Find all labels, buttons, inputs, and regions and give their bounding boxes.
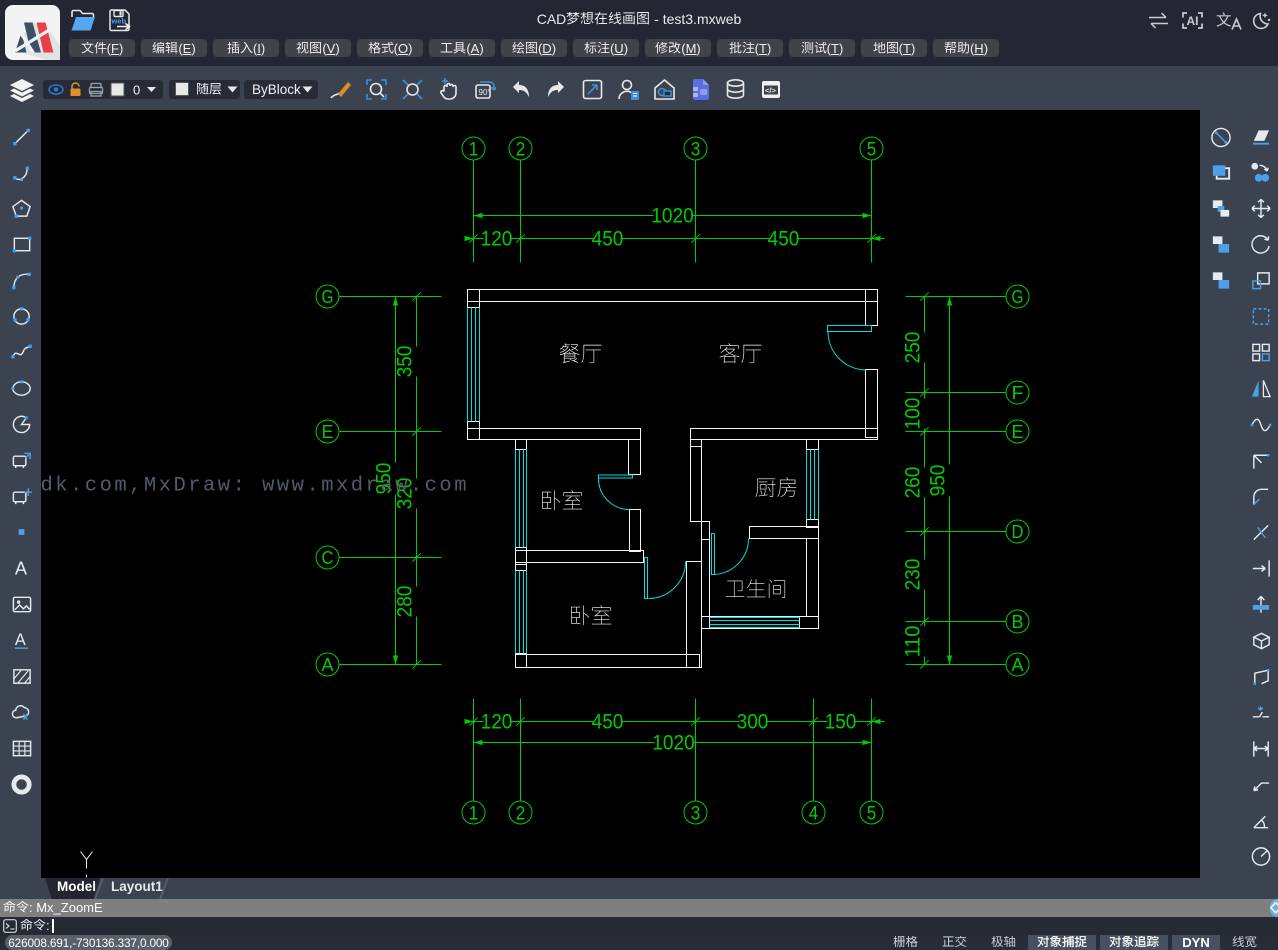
svg-text:F: F <box>1012 383 1024 403</box>
svg-text:260: 260 <box>902 467 925 499</box>
svg-text:B: B <box>1012 612 1024 632</box>
svg-text:AI: AI <box>1187 14 1199 28</box>
svg-text:A: A <box>15 631 26 649</box>
svg-text:4: 4 <box>809 804 819 825</box>
svg-text:5: 5 <box>867 140 877 161</box>
svg-text:230: 230 <box>902 559 925 591</box>
svg-text:350: 350 <box>394 346 417 378</box>
svg-text:2: 2 <box>516 804 526 825</box>
svg-text:1: 1 <box>469 804 479 825</box>
svg-text:1020: 1020 <box>652 732 694 755</box>
svg-text:1: 1 <box>469 140 479 161</box>
svg-text:G: G <box>322 287 334 307</box>
svg-text:110: 110 <box>902 626 925 658</box>
svg-text:120: 120 <box>481 228 513 251</box>
svg-text:3: 3 <box>691 140 701 161</box>
svg-text:G: G <box>1012 287 1024 307</box>
svg-text:120: 120 <box>481 711 513 734</box>
svg-text:250: 250 <box>902 332 925 364</box>
svg-text:3: 3 <box>691 804 701 825</box>
svg-text:150: 150 <box>825 711 857 734</box>
svg-text:950: 950 <box>927 465 950 497</box>
svg-text:2: 2 <box>516 140 526 161</box>
svg-text:A: A <box>1012 655 1024 675</box>
svg-text:450: 450 <box>592 711 624 734</box>
svg-text:450: 450 <box>768 228 800 251</box>
svg-text:</>: </> <box>765 86 776 95</box>
svg-text:E: E <box>322 422 334 442</box>
svg-text:100: 100 <box>902 398 925 430</box>
svg-text:D: D <box>1012 522 1024 542</box>
svg-text:A: A <box>15 559 28 579</box>
svg-text:300: 300 <box>737 711 769 734</box>
svg-text:E: E <box>1012 422 1024 442</box>
svg-text:90°: 90° <box>479 88 491 97</box>
svg-text:1020: 1020 <box>651 205 693 228</box>
svg-text:dk.com,MxDraw: www.mxdraw.com: dk.com,MxDraw: www.mxdraw.com <box>41 475 467 498</box>
svg-text:C: C <box>322 548 334 568</box>
svg-text:A: A <box>322 655 334 675</box>
svg-text:5: 5 <box>867 804 877 825</box>
svg-text:0: 0 <box>133 83 140 98</box>
svg-text:280: 280 <box>394 586 417 618</box>
svg-text:450: 450 <box>592 228 624 251</box>
